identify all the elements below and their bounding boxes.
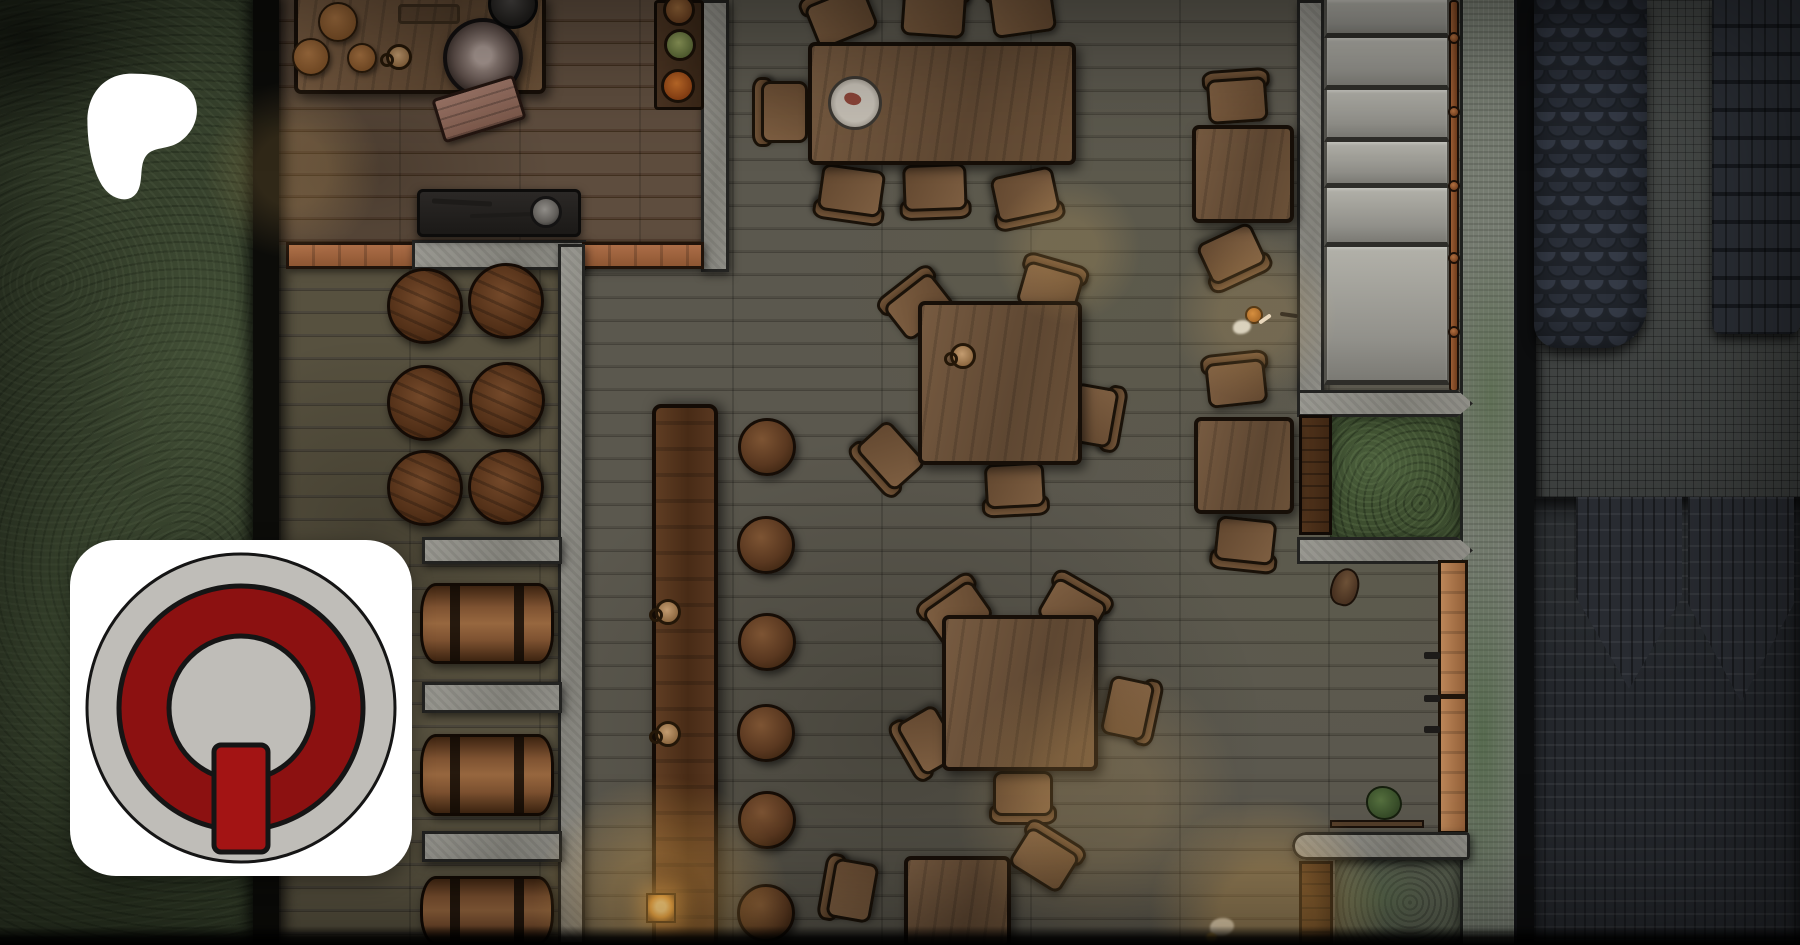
tavern-map-image [0, 0, 1800, 945]
round-table-2 [942, 615, 1098, 771]
door-hinge [1424, 726, 1440, 733]
chair-roundtable2-s [991, 769, 1055, 825]
cellar-east-wall [558, 244, 585, 945]
pipe-joint [1448, 326, 1460, 338]
round-barrel [387, 450, 463, 526]
courtyard-grass [1330, 414, 1460, 542]
chair-seat [902, 163, 968, 212]
chair-seat [1206, 76, 1269, 125]
stair-landing [1324, 247, 1450, 385]
kitchen-south-beam-east [582, 242, 704, 269]
chair-seat [817, 163, 887, 218]
cellar-niche-wall-2 [422, 682, 562, 713]
cellar-niche-wall-3 [422, 831, 562, 862]
bread-loaf [347, 43, 377, 73]
chair-squaretable2-s [1210, 513, 1280, 575]
chair-seat [761, 81, 808, 143]
round-table-1 [918, 301, 1082, 465]
door-hinge [1424, 652, 1440, 659]
bar-stool [737, 516, 795, 574]
table-mug [950, 343, 976, 369]
mossy-street-wall [1460, 0, 1517, 945]
bar-mug [655, 721, 681, 747]
chair-seat [825, 857, 880, 924]
chair-seat [1213, 515, 1277, 566]
shingle-roof-northeast [1712, 0, 1800, 334]
bottom-letterbox [0, 926, 1800, 945]
kitchen-east-wall [701, 0, 729, 272]
chair-seat [1204, 358, 1268, 409]
stair-tread-2 [1324, 38, 1450, 90]
chair-roundtable1-s [982, 459, 1049, 518]
chair-seat [984, 461, 1046, 509]
northeast-door [1299, 415, 1332, 535]
potted-plant [1366, 786, 1402, 820]
lying-barrel [420, 583, 554, 664]
square-table-1 [1192, 125, 1294, 223]
kitchen-mug [386, 44, 412, 70]
q-monogram-icon [70, 540, 412, 876]
chair-bottomtable-w [816, 854, 882, 927]
pipe-joint [1448, 180, 1460, 192]
pipe-joint [1448, 252, 1460, 264]
dinner-plate [828, 76, 882, 130]
spice-bowl-orange [661, 69, 695, 103]
wall-below-stairs [1297, 390, 1473, 417]
round-barrel [468, 449, 544, 525]
east-wall-north [1297, 0, 1324, 393]
bar-stool [737, 704, 795, 762]
chair-seat [988, 0, 1058, 39]
bread-loaf [292, 38, 330, 76]
pipe-joint [1448, 106, 1460, 118]
shingle-roof-north [1534, 0, 1647, 348]
chair-seat [900, 0, 967, 39]
pipe-joint [1448, 32, 1460, 44]
east-double-door [1438, 560, 1468, 834]
bar-mug [655, 599, 681, 625]
chair-longtable-left [752, 79, 810, 145]
square-table-2 [1194, 417, 1294, 514]
kitchen-south-beam-west [286, 242, 416, 269]
hearth-pot [530, 196, 562, 228]
chair-seat [993, 771, 1053, 816]
bar-stool [738, 418, 796, 476]
stair-tread-3 [1324, 90, 1450, 142]
chair-longtable-top-2 [898, 0, 970, 41]
stair-tread-5 [1324, 188, 1450, 247]
spice-bowl-green [664, 29, 696, 61]
stair-tread-4 [1324, 142, 1450, 188]
door-hinge [1424, 695, 1440, 702]
chair-squaretable1-n [1203, 67, 1271, 127]
stair-tread-1 [1324, 0, 1450, 38]
lying-barrel [420, 734, 554, 816]
round-barrel [468, 263, 544, 339]
round-barrel [469, 362, 545, 438]
southeast-wall [1292, 832, 1470, 860]
chair-squaretable2-n [1201, 349, 1271, 411]
bar-counter [652, 404, 718, 945]
bread-loaf [318, 2, 358, 42]
chair-longtable-bottom-2 [900, 161, 970, 221]
cellar-niche-wall-1 [422, 537, 562, 564]
round-barrel [387, 365, 463, 441]
creator-logo-card [70, 540, 412, 876]
patreon-symbol-icon [75, 68, 213, 220]
wall-shelf [1330, 820, 1424, 828]
bar-stool [738, 791, 796, 849]
floor-candle [646, 893, 676, 923]
serving-tray [398, 4, 460, 24]
chair-longtable-bottom-1 [813, 161, 888, 228]
bar-stool [738, 613, 796, 671]
patreon-logo [75, 68, 213, 220]
round-barrel [387, 268, 463, 344]
